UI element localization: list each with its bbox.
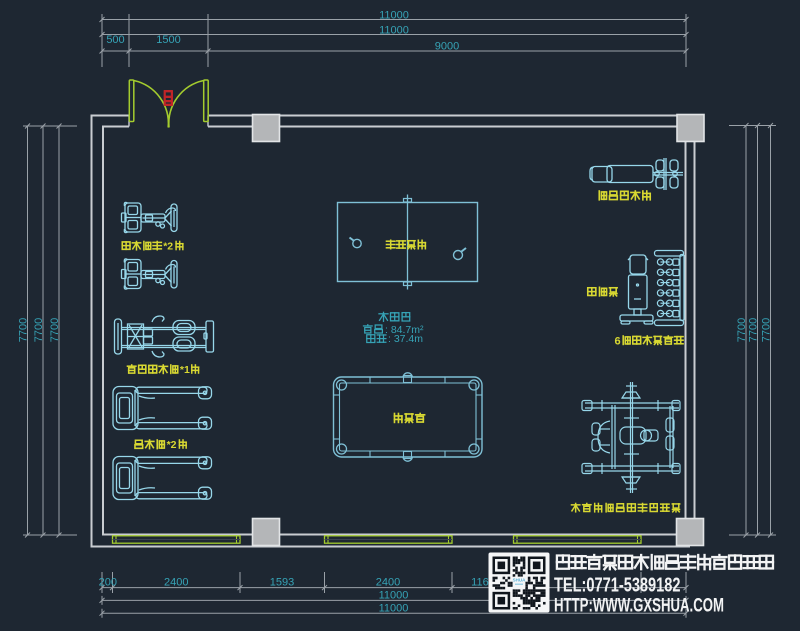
svg-text:1593: 1593 (270, 577, 294, 589)
svg-text:11000: 11000 (379, 9, 409, 21)
svg-text:500: 500 (106, 34, 124, 46)
svg-text:2400: 2400 (376, 577, 400, 589)
svg-text:*2: *2 (167, 439, 177, 451)
svg-text:200: 200 (99, 577, 117, 589)
svg-text:11000: 11000 (379, 24, 409, 36)
svg-text:9000: 9000 (435, 40, 459, 52)
svg-text:2400: 2400 (164, 577, 188, 589)
svg-text:1500: 1500 (156, 34, 180, 46)
svg-text:7700: 7700 (49, 318, 61, 342)
svg-text:: 37.4m: : 37.4m (388, 333, 423, 345)
svg-text:7700: 7700 (761, 318, 773, 342)
svg-text:*1: *1 (180, 364, 190, 376)
svg-text:7700: 7700 (18, 318, 30, 342)
svg-text:TEL:0771-5389182: TEL:0771-5389182 (554, 575, 681, 597)
svg-text:SHUA: SHUA (513, 578, 527, 583)
svg-text:7700: 7700 (748, 318, 760, 342)
svg-text:*2: *2 (163, 240, 173, 252)
svg-text:HTTP:WWW.GXSHUA.COM: HTTP:WWW.GXSHUA.COM (554, 595, 724, 617)
svg-text:7700: 7700 (33, 318, 45, 342)
svg-text:11000: 11000 (379, 590, 409, 602)
svg-text:7700: 7700 (736, 318, 748, 342)
svg-text:11000: 11000 (379, 603, 409, 615)
svg-text:6: 6 (615, 335, 621, 347)
